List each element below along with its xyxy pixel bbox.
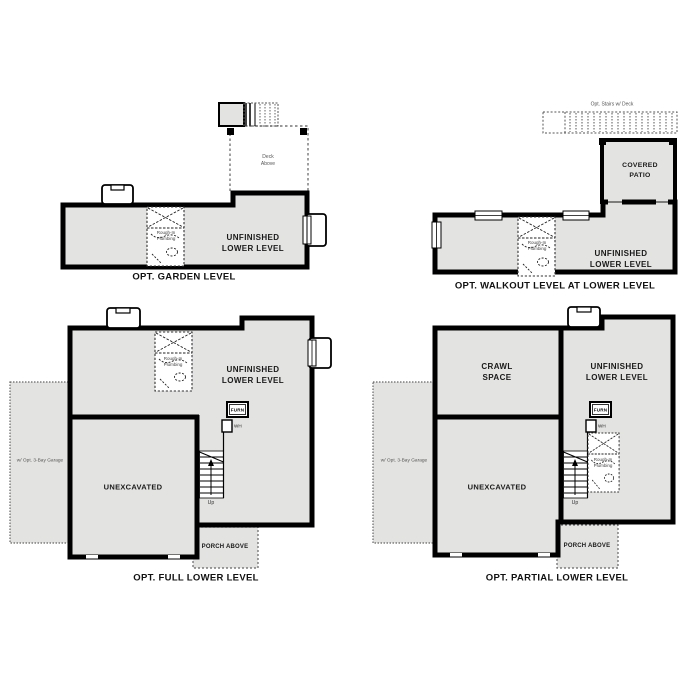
garage-label: w/ Opt. 3-Bay Garage bbox=[381, 459, 427, 466]
rough-in-label: Rough-In Plumbing bbox=[164, 356, 183, 368]
rough-in-label: Rough-In Plumbing bbox=[594, 457, 613, 469]
room-label-unfinished: UNFINISHED LOWER LEVEL bbox=[222, 364, 284, 386]
porch-label: PORCH ABOVE bbox=[564, 543, 611, 549]
floorplan-sheet: Deck Above UNFINISHED LOWER LEVEL Rough-… bbox=[0, 0, 687, 687]
porch-label: PORCH ABOVE bbox=[202, 544, 249, 550]
furnace-label: FURN bbox=[594, 407, 608, 412]
stairs-up-label: Up bbox=[208, 500, 215, 506]
plan-partial-drawing bbox=[370, 305, 682, 590]
deck-stairs bbox=[543, 112, 677, 133]
plan-walkout-caption: OPT. WALKOUT LEVEL AT LOWER LEVEL bbox=[455, 281, 655, 292]
plan-full-caption: OPT. FULL LOWER LEVEL bbox=[133, 573, 258, 584]
garage-label: w/ Opt. 3-Bay Garage bbox=[17, 459, 63, 466]
plan-garden-caption: OPT. GARDEN LEVEL bbox=[132, 272, 235, 283]
window-left bbox=[432, 222, 441, 248]
exterior-walls bbox=[63, 193, 307, 267]
room-label-unfinished: UNFINISHED LOWER LEVEL bbox=[222, 232, 284, 254]
water-heater bbox=[222, 420, 232, 432]
window-top-1 bbox=[475, 211, 502, 220]
window-well-top bbox=[568, 307, 600, 327]
room-label-unfinished: UNFINISHED LOWER LEVEL bbox=[586, 361, 648, 383]
plan-partial-caption: OPT. PARTIAL LOWER LEVEL bbox=[486, 573, 629, 584]
plan-garden-drawing bbox=[60, 95, 335, 290]
room-label-covered-patio: COVERED PATIO bbox=[622, 161, 658, 181]
stairs-deck-label: Opt. Stairs w/ Deck bbox=[591, 102, 634, 109]
water-heater bbox=[586, 420, 596, 432]
room-label-unexcavated: UNEXCAVATED bbox=[468, 483, 527, 492]
water-heater-label: WH bbox=[598, 424, 606, 429]
plan-walkout: Opt. Stairs w/ Deck COVERED PATIO UNFINI… bbox=[420, 95, 687, 295]
window-well-right bbox=[308, 338, 331, 368]
furnace-label: FURN bbox=[231, 407, 245, 412]
rough-in-label: Rough-In Plumbing bbox=[157, 230, 176, 242]
plan-full-drawing bbox=[8, 305, 340, 590]
plan-partial: CRAWL SPACE UNFINISHED LOWER LEVEL UNEXC… bbox=[370, 305, 682, 590]
room-label-unfinished: UNFINISHED LOWER LEVEL bbox=[590, 248, 652, 270]
window-top-2 bbox=[563, 211, 589, 220]
stairs-up-label: Up bbox=[572, 500, 579, 506]
window-well-right bbox=[303, 214, 326, 246]
rough-in-label: Rough-In Plumbing bbox=[528, 240, 547, 252]
plan-full: UNFINISHED LOWER LEVEL UNEXCAVATED w/ Op… bbox=[8, 305, 340, 590]
water-heater-label: WH bbox=[234, 424, 242, 429]
plan-garden: Deck Above UNFINISHED LOWER LEVEL Rough-… bbox=[60, 95, 335, 290]
room-label-crawl-space: CRAWL SPACE bbox=[481, 361, 512, 383]
room-label-unexcavated: UNEXCAVATED bbox=[104, 483, 163, 492]
deck-label: Deck Above bbox=[261, 154, 275, 168]
exterior-walls bbox=[435, 317, 673, 555]
window-well-top bbox=[102, 185, 133, 204]
deck-stairs bbox=[219, 103, 278, 126]
window-well-top bbox=[107, 308, 140, 328]
